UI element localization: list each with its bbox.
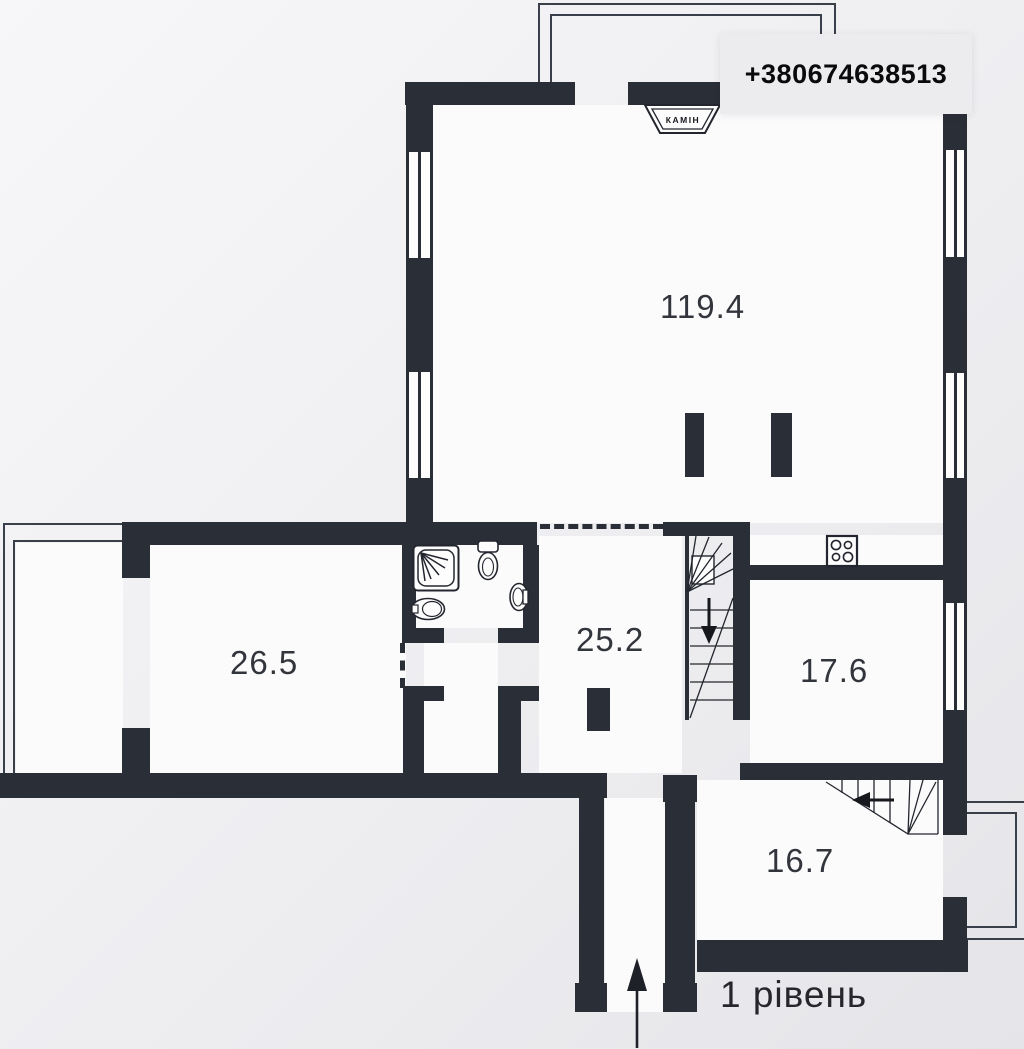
column-stub bbox=[685, 413, 704, 477]
toilet-icon bbox=[474, 540, 502, 582]
wall-segment-fireplace bbox=[628, 82, 718, 105]
fireplace-icon: КАМІН bbox=[644, 104, 722, 135]
room-label-hall: 25.2 bbox=[576, 621, 644, 659]
wall-segment bbox=[122, 728, 150, 773]
stairs-direction-arrow-icon bbox=[852, 792, 870, 808]
wall-segment bbox=[579, 798, 604, 983]
entrance-arrow-icon bbox=[624, 958, 650, 1049]
wall-segment bbox=[402, 628, 444, 643]
wall-segment bbox=[663, 775, 697, 802]
wall-segment bbox=[587, 688, 610, 731]
staircase-winder bbox=[826, 780, 942, 838]
wall-segment bbox=[943, 710, 967, 835]
window bbox=[943, 150, 967, 257]
terrace-left-outline bbox=[13, 540, 123, 542]
wall-segment bbox=[943, 257, 967, 373]
balcony-top-outline bbox=[538, 3, 540, 83]
balcony-right-outline bbox=[967, 926, 1017, 928]
terrace-left-outline bbox=[13, 540, 15, 773]
window bbox=[943, 603, 967, 710]
wall-segment bbox=[498, 701, 521, 773]
floor-plan: КАМІН bbox=[0, 0, 1024, 1049]
wall-segment bbox=[403, 686, 444, 701]
room-label-living: 119.4 bbox=[660, 288, 745, 326]
balcony-top-outline bbox=[550, 14, 552, 83]
opening-dashed bbox=[540, 524, 663, 529]
room-label-kitchen: 17.6 bbox=[800, 652, 868, 690]
wall-segment bbox=[575, 983, 607, 1012]
wall-segment bbox=[663, 522, 750, 536]
wall-segment bbox=[943, 897, 967, 942]
terrace-left-outline bbox=[3, 523, 123, 525]
lobby-fill bbox=[424, 643, 498, 773]
balcony-right-outline bbox=[967, 801, 1024, 803]
opening-dashed bbox=[400, 643, 405, 688]
wall-segment bbox=[697, 940, 968, 972]
bidet-icon bbox=[505, 581, 529, 613]
wall-segment bbox=[403, 701, 424, 773]
balcony-top-outline bbox=[550, 14, 822, 16]
stairs-down-arrow-icon bbox=[701, 626, 717, 644]
balcony-top-outline bbox=[538, 3, 836, 5]
wall-segment bbox=[740, 763, 945, 780]
window bbox=[406, 152, 433, 258]
wall-segment bbox=[498, 628, 539, 643]
wall-segment bbox=[406, 258, 433, 372]
column-stub bbox=[771, 413, 792, 477]
phone-number-badge: +380674638513 bbox=[720, 34, 972, 114]
window bbox=[943, 373, 967, 478]
window bbox=[406, 372, 433, 478]
wall-segment bbox=[122, 545, 150, 578]
room-label-bedroom: 26.5 bbox=[230, 644, 298, 682]
terrace-left-outline bbox=[3, 523, 5, 773]
wall-segment bbox=[663, 983, 697, 1012]
staircase-main bbox=[682, 536, 752, 720]
sink-icon bbox=[410, 596, 446, 622]
fireplace-label: КАМІН bbox=[666, 115, 700, 125]
wall-segment bbox=[943, 478, 967, 603]
stove-icon bbox=[825, 534, 859, 568]
room-label-lower: 16.7 bbox=[766, 842, 834, 880]
wall-segment bbox=[665, 802, 695, 983]
level-label: 1 рівень bbox=[720, 974, 867, 1016]
wall-segment bbox=[406, 82, 433, 152]
wall-segment bbox=[406, 478, 433, 524]
wall-segment bbox=[0, 773, 607, 798]
terrace-left-fill bbox=[16, 543, 123, 773]
balcony-right-outline bbox=[967, 812, 1017, 814]
phone-number: +380674638513 bbox=[745, 59, 947, 90]
balcony-right-outline bbox=[967, 938, 1024, 940]
wall-segment bbox=[498, 686, 539, 701]
balcony-right-outline bbox=[1015, 812, 1017, 928]
shower-icon bbox=[412, 544, 460, 592]
